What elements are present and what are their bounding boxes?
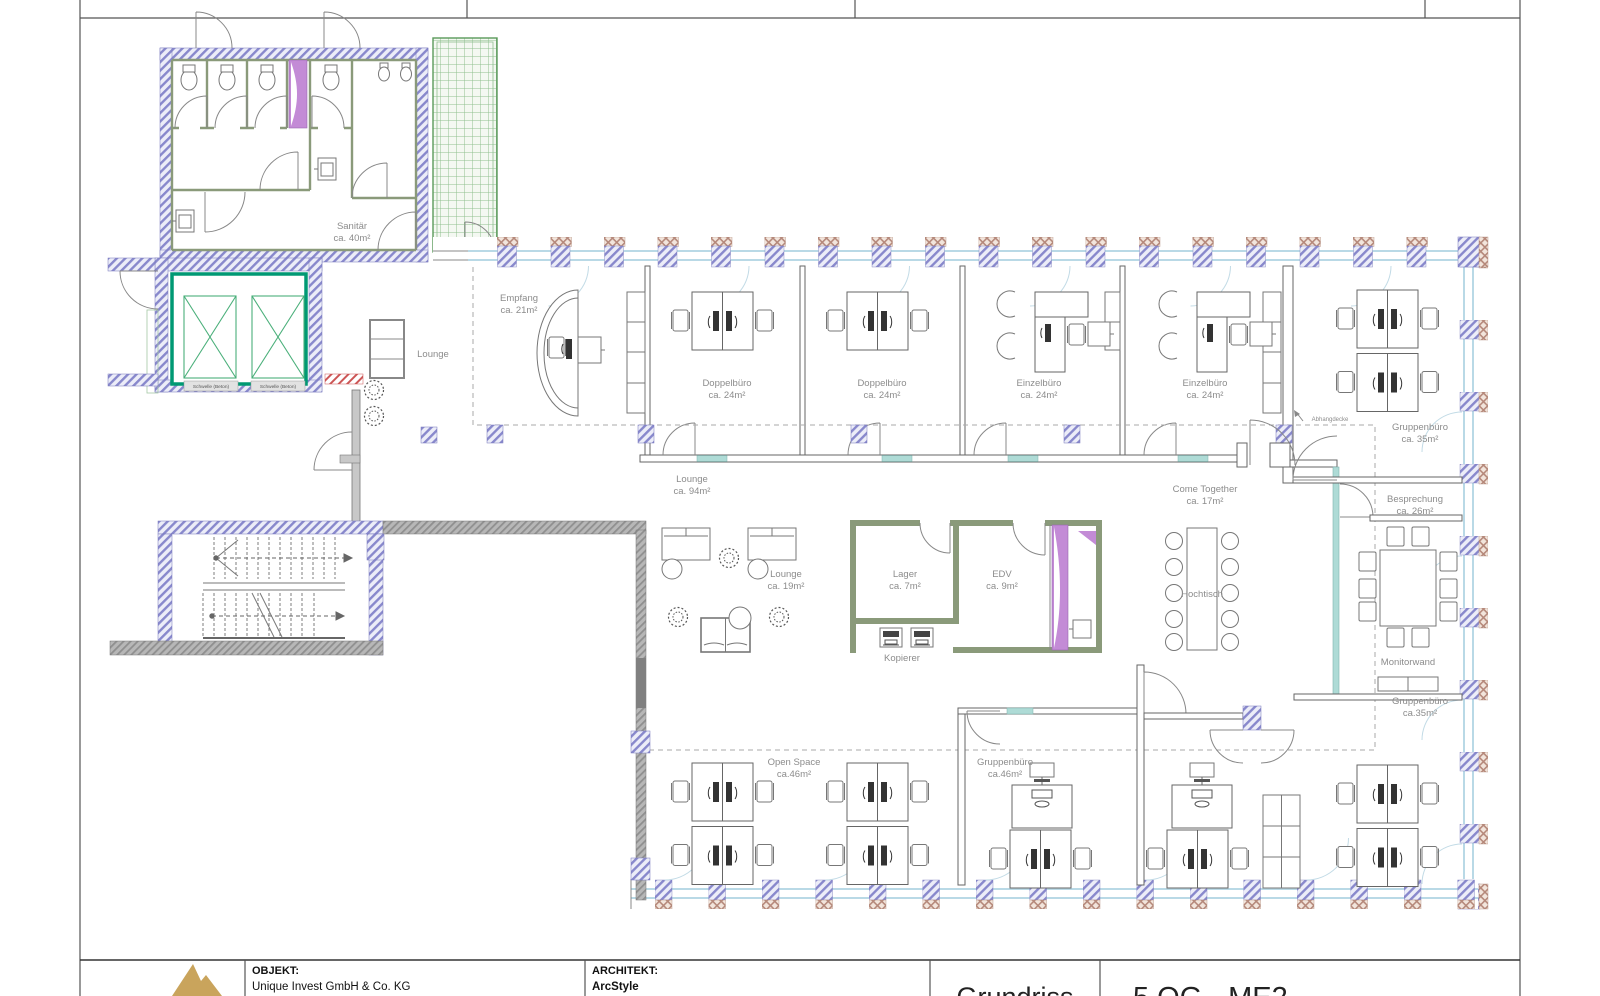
label-doppelbuero1-name: Doppelbüro [702,378,751,389]
toilet-icon [181,65,197,90]
label-gruppenbuero-bottom-name: Gruppenbüro [977,757,1033,768]
plant-icon [365,407,384,426]
door-sill [1007,708,1033,714]
sink-icon [172,210,194,232]
desk-cluster-gruppenbuero-top [1337,290,1439,412]
toilet-icon [219,65,235,90]
label-empfang-name: Empfang [500,293,538,304]
toilet-icon [259,65,275,90]
label-come-together-area: ca. 17m² [1187,496,1224,507]
label-sanitaer-area: ca. 40m² [334,233,371,244]
label-schwelle-2: Schwelle (Beton) [260,384,297,390]
column [367,534,384,560]
column [1243,706,1261,730]
objekt-value: Unique Invest GmbH & Co. KG [252,981,411,993]
drawing-sheet: Sanitär ca. 40m² Schwelle (Beton) Schwel… [0,0,1600,996]
label-besprechung-name: Besprechung [1387,494,1443,505]
label-open-space-name: Open Space [768,757,821,768]
label-monitorwand: Monitorwand [1381,657,1435,668]
label-doppelbuero2-area: ca. 24m² [864,390,901,401]
plant-icon [365,381,384,400]
sanitary-block: Sanitär ca. 40m² [160,12,428,262]
glass-wall [1333,467,1339,697]
elevator-block: Schwelle (Beton) Schwelle (Beton) [147,258,322,393]
desk-einzelbuero-2 [1159,291,1276,372]
reception-desk [537,290,605,416]
toilet-icon [323,65,339,90]
urinal-icon [401,63,412,81]
label-besprechung-area: ca. 26m² [1397,506,1434,517]
label-sanitaer-name: Sanitär [337,221,367,232]
besprechung-room: Besprechung ca. 26m² Monitorwand [1294,494,1462,700]
columns-row [487,425,1292,443]
objekt-label: OBJEKT: [252,965,299,977]
column [631,858,650,880]
lower-offices: Open Space ca.46m² Gruppenbüro ca.46m² G… [631,530,1448,900]
stair-direction-arrows [210,554,352,620]
label-empfang-area: ca. 21m² [501,305,538,316]
label-einzelbuero1-area: ca. 24m² [1021,390,1058,401]
stairwell [110,521,646,655]
architekt-label: ARCHITEKT: [592,965,658,977]
desk-cluster-open-space-2 [827,763,929,885]
door-sill [697,456,727,462]
sofa-icon [662,528,710,579]
desk-cluster-doppelbuero-2 [827,292,929,350]
shelf-unit [1263,795,1300,888]
desk-cluster-doppelbuero-1 [672,292,774,350]
door-sill [1008,456,1038,462]
shaft-sanitary [289,60,307,128]
drawing-title: Grundriss [956,982,1073,996]
floor-plan-svg: Sanitär ca. 40m² Schwelle (Beton) Schwel… [0,0,1600,996]
copier-station: Kopierer [880,628,933,664]
door-sill [1178,456,1208,462]
label-lager-name: Lager [893,569,917,580]
architekt-value: ArcStyle [592,981,639,993]
plant-icon [770,608,789,627]
atrium-grid [433,38,497,252]
reading-table [701,607,751,652]
door-arcs-sanitary [175,12,416,250]
printer-desk [1172,763,1232,828]
label-gruppenbuero-right-area: ca.35m² [1403,708,1437,719]
label-lager-area: ca. 7m² [889,581,921,592]
label-lounge-small: Lounge [417,349,449,360]
label-doppelbuero1-area: ca. 24m² [709,390,746,401]
meeting-table [1380,550,1436,626]
label-doppelbuero2-name: Doppelbüro [857,378,906,389]
facade-right [1458,237,1488,909]
urinal-icon [379,63,390,81]
plant-icon [720,549,739,568]
plant-icon [669,608,688,627]
door-sill [882,456,912,462]
facade-top [433,237,1478,268]
label-come-together-name: Come Together [1173,484,1238,495]
sink-icon [314,158,336,180]
label-schwelle-1: Schwelle (Beton) [193,384,230,390]
label-gruppenbuero-right-name: Gruppenbüro [1392,696,1448,707]
column [631,731,650,753]
label-gruppenbuero-bottom-area: ca.46m² [988,769,1022,780]
desk-cluster-gruppenbuero-right [1337,765,1439,887]
title-block: OBJEKT: Unique Invest GmbH & Co. KG ARCH… [80,960,1520,996]
label-lounge19-area: ca. 19m² [768,581,805,592]
label-gruppenbuero-top-name: Gruppenbüro [1392,422,1448,433]
label-einzelbuero1-name: Einzelbüro [1017,378,1062,389]
label-lounge94-area: ca. 94m² [674,486,711,497]
label-einzelbuero2-area: ca. 24m² [1187,390,1224,401]
label-hochtisch: Hochtisch [1181,589,1223,600]
label-lounge19-name: Lounge [770,569,802,580]
label-lounge94-name: Lounge [676,474,708,485]
label-edv-name: EDV [992,569,1012,580]
column [421,427,437,443]
sheet-frame [80,0,1520,996]
label-edv-area: ca. 9m² [986,581,1018,592]
label-einzelbuero2-name: Einzelbüro [1183,378,1228,389]
label-gruppenbuero-top-area: ca. 35m² [1402,434,1439,445]
label-kopierer: Kopierer [884,653,920,664]
copier-icon [880,628,902,647]
drawing-code: 5.OG - ME2 [1133,982,1288,996]
fire-wall-segment [325,374,363,384]
corridor-wall [640,455,1240,462]
abhangdecke-note: Abhangdecke [1294,410,1349,423]
desk-einzelbuero-1 [997,291,1114,372]
copier-icon [911,628,933,647]
company-logo [172,964,222,996]
desk-cluster-open-space-1 [672,763,774,885]
lounge-19: Lounge ca. 19m² [662,528,804,652]
label-open-space-area: ca.46m² [777,769,811,780]
lounge-elevator-area: Lounge [365,320,449,443]
label-abhangdecke: Abhangdecke [1312,417,1349,423]
